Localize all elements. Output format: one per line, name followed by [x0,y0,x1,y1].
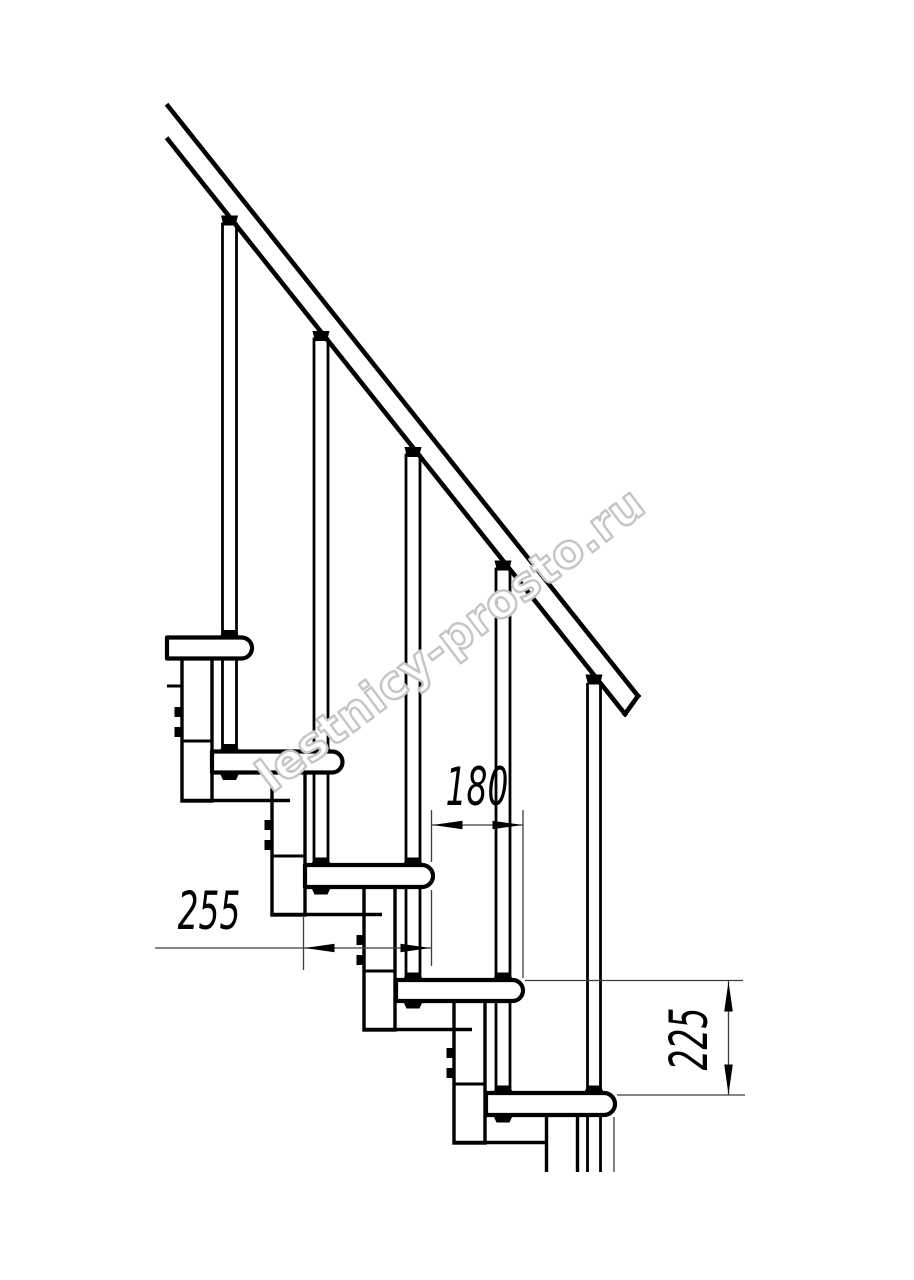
dim-label-step-rise: 225 [659,1008,720,1071]
dim-label-step-run: 180 [446,757,509,818]
tread-clamp [493,1086,513,1094]
tread-clamp [311,858,331,866]
tread-clamp [220,630,240,638]
tread-3 [305,865,433,887]
baluster-1 [223,224,237,773]
staircase-side-elevation-drawing: 180 255 225 [0,0,914,1280]
arrow-down-icon [724,1065,733,1095]
stringer-module [364,887,395,1030]
handrail-upper-edge [168,106,638,696]
arrow-up-icon [724,982,733,1012]
bolt-icon [447,1048,455,1058]
tread-clamp [584,1086,604,1094]
tread-4 [396,980,523,1001]
arrow-left-icon [433,821,463,830]
bolt-icon [265,840,273,850]
bolt-icon [265,820,273,830]
bolt-icon [357,935,365,945]
baluster-3 [406,455,420,1001]
tread-clamp [220,744,240,752]
bolt-icon [175,727,183,737]
dimensions: 180 255 225 [155,757,745,1172]
bolt-icon [175,707,183,717]
baluster-2 [314,339,328,888]
tread-clamp-bottom [493,1115,513,1123]
handrail-end-cap [625,696,638,714]
bolt-icon [357,955,365,965]
handrail [168,106,638,714]
tread-5 [486,1093,615,1115]
tread-1 [167,638,252,659]
tread-clamp [403,858,423,866]
tread-clamp-bottom [220,773,240,781]
tread-clamp [493,973,513,981]
staircase-drawing-page: 180 255 225 [0,0,914,1280]
tread-clamp [403,973,423,981]
stringer-module [454,1000,485,1143]
dim-label-tread-depth: 255 [178,881,241,942]
arrow-left-icon [305,944,335,953]
tread-clamp-bottom [311,887,331,895]
baluster-4 [496,569,510,1115]
tread-clamp-bottom [403,1001,423,1009]
stringer-module [182,657,212,801]
bolt-icon [447,1068,455,1078]
